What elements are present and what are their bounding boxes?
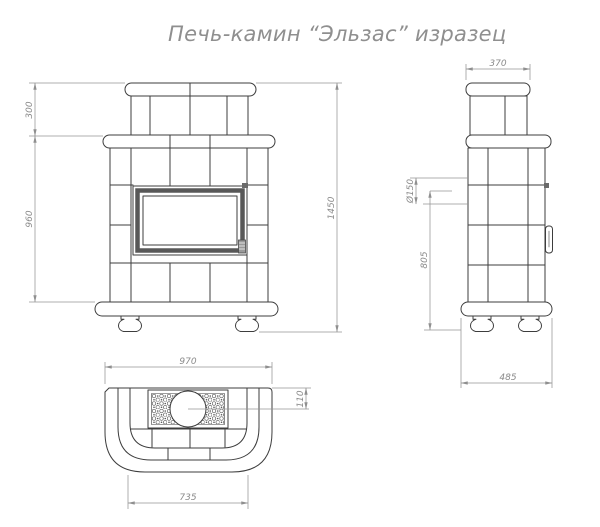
dim-total-height: 1450 <box>327 196 337 219</box>
door-hinge-icon <box>242 183 248 188</box>
front-left-foot <box>118 316 141 332</box>
side-cornice-shelf <box>466 135 551 148</box>
dim-total-width: 970 <box>179 357 196 367</box>
front-right-foot <box>235 316 258 332</box>
door-glass <box>143 196 237 245</box>
door-handle-side <box>546 226 553 253</box>
dim-upper-height: 300 <box>25 101 35 118</box>
front-view <box>95 83 278 332</box>
dim-flue-center-height: 805 <box>420 251 430 268</box>
dim-flue-center-offset: 110 <box>296 390 306 407</box>
side-front-foot <box>518 316 541 332</box>
door-handle-front <box>239 240 246 253</box>
front-cornice-shelf <box>103 135 275 148</box>
drawing-sheet: Печь-камин “Эльзас” изразец <box>0 0 600 527</box>
dim-front-width: 735 <box>179 493 196 503</box>
dim-flue-diameter: Ø150 <box>405 179 416 205</box>
dim-base-depth: 485 <box>499 373 516 383</box>
side-base-plinth <box>461 302 552 316</box>
side-crown-cap <box>466 83 530 96</box>
side-rear-foot <box>470 316 493 332</box>
dim-top-depth: 370 <box>489 59 506 69</box>
dim-body-height: 960 <box>25 210 35 227</box>
front-base-plinth <box>95 302 278 316</box>
side-door-hinge-icon <box>544 183 549 188</box>
side-view <box>461 83 553 332</box>
side-upper-section <box>470 96 527 135</box>
technical-drawing: 300 960 1450 <box>0 0 600 527</box>
top-view <box>105 388 272 472</box>
